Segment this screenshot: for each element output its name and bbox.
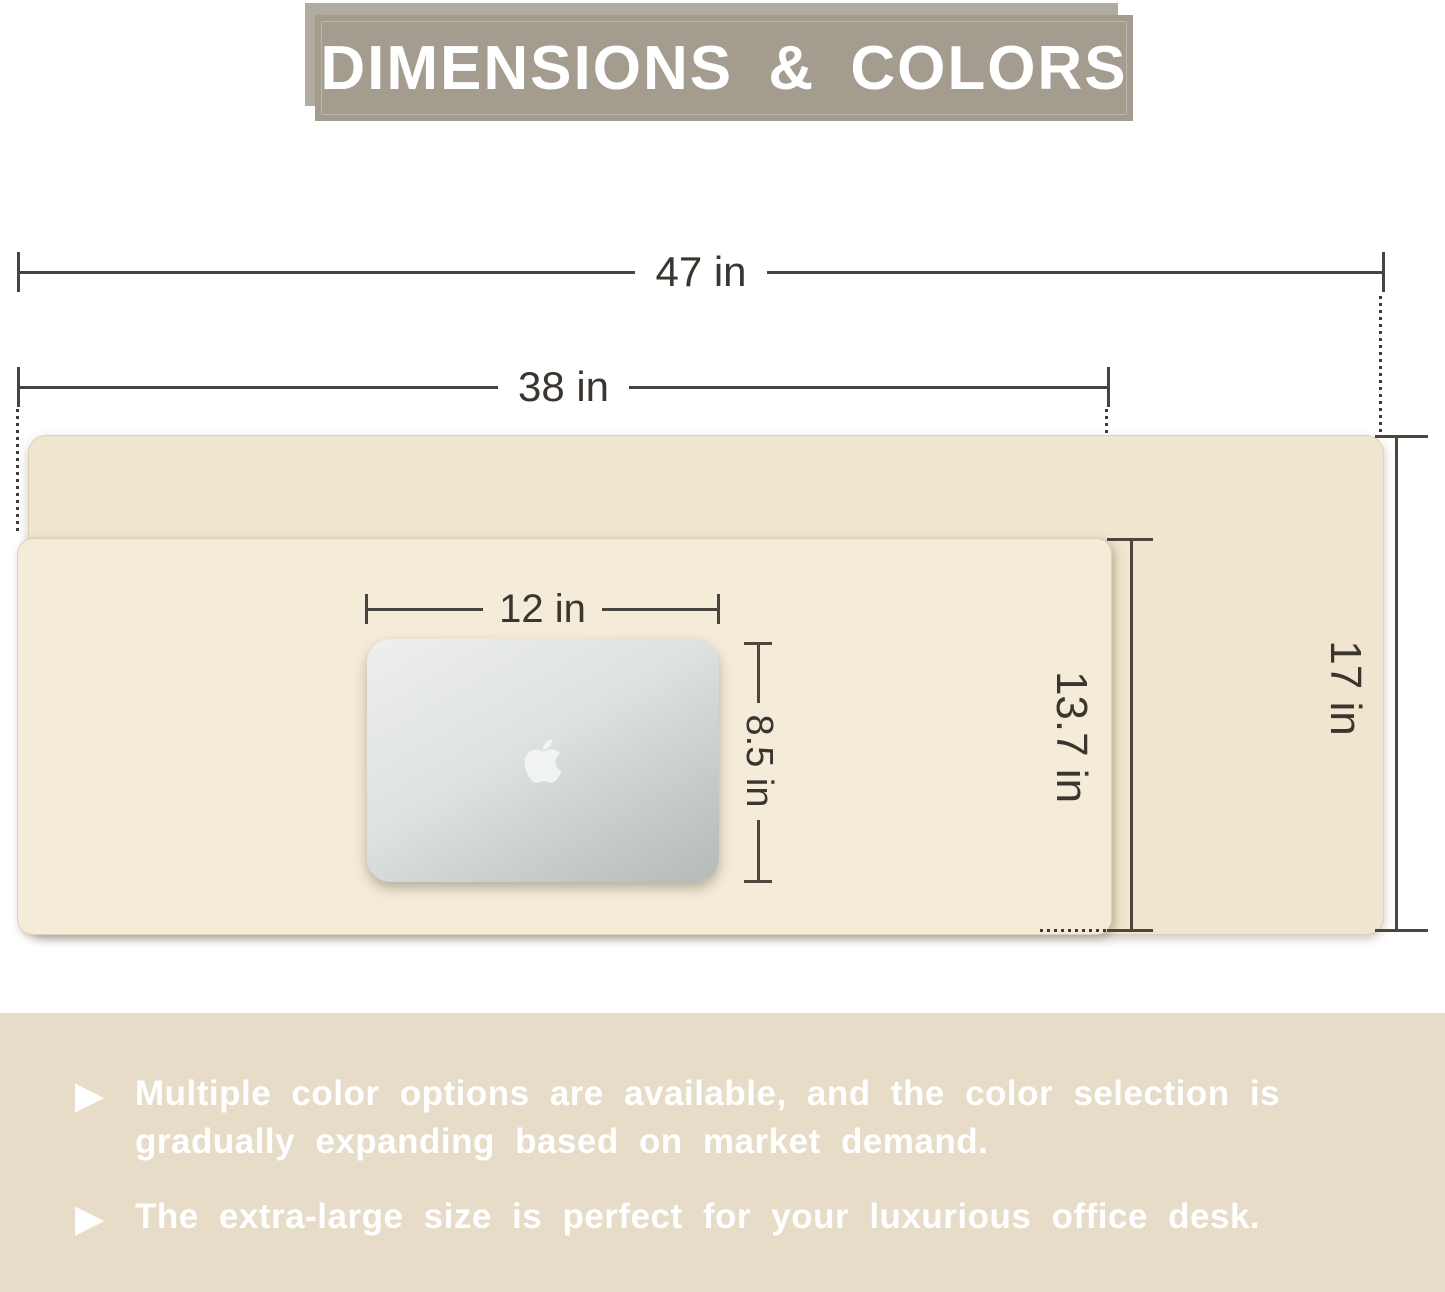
dim-line [20, 386, 498, 389]
dim-tick [1375, 435, 1428, 438]
dim-line [20, 271, 635, 274]
title-banner: DIMENSIONS & COLORS [315, 15, 1133, 121]
dim-line [1395, 437, 1398, 932]
dim-tick [1382, 252, 1385, 292]
product-dimensions-infographic: DIMENSIONS & COLORS 47 in 38 in 12 in [0, 0, 1445, 1292]
large-mat-width-label: 47 in [635, 251, 766, 293]
dim-line [757, 645, 760, 703]
bullet-triangle-icon: ▶ [75, 1200, 104, 1238]
dim-line [1130, 540, 1133, 932]
dim-line [368, 608, 483, 611]
small-mat-width-label: 38 in [498, 366, 629, 408]
laptop-width-label: 12 in [483, 589, 602, 629]
feature-item: Multiple color options are available, an… [135, 1070, 1415, 1166]
dim-tick [717, 594, 720, 624]
bullet-triangle-icon: ▶ [75, 1077, 104, 1115]
dim-line [767, 271, 1382, 274]
dim-laptop-width: 12 in [365, 594, 720, 624]
dim-small-mat-width: 38 in [17, 367, 1110, 407]
small-mat-height-label: 13.7 in [1049, 671, 1093, 803]
dim-line [602, 608, 717, 611]
laptop [367, 639, 719, 882]
extension-line-left [16, 409, 19, 535]
dim-line [757, 820, 760, 881]
extension-line-large-mat-right [1379, 296, 1382, 432]
feature-item: The extra-large size is perfect for your… [135, 1193, 1415, 1241]
page-title: DIMENSIONS & COLORS [320, 33, 1127, 104]
dim-tick [1107, 367, 1110, 407]
extension-line-small-mat-bottom [1040, 929, 1110, 932]
dim-tick [1375, 929, 1428, 932]
dim-line [629, 386, 1107, 389]
apple-logo-icon [520, 734, 566, 788]
dim-large-mat-width: 47 in [17, 252, 1385, 292]
laptop-height-label: 8.5 in [740, 715, 778, 808]
large-mat-height-label: 17 in [1323, 640, 1367, 735]
dim-tick [744, 880, 772, 883]
dim-tick [1107, 929, 1153, 932]
